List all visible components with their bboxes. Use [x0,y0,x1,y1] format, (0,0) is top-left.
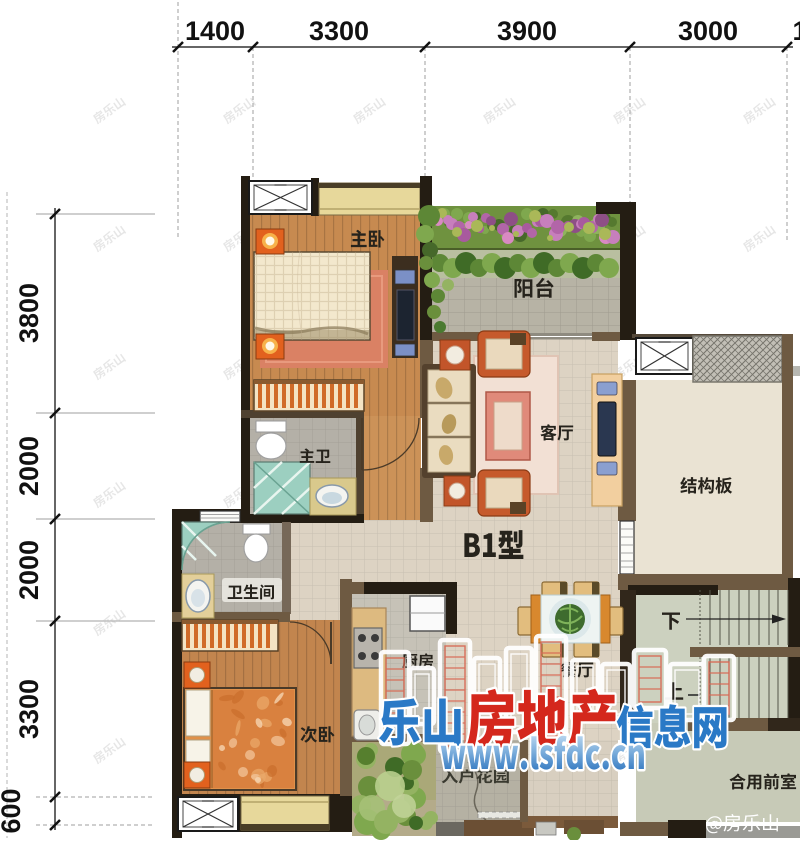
svg-text:3300: 3300 [14,679,44,739]
svg-text:3000: 3000 [678,16,738,46]
svg-text:3300: 3300 [309,16,369,46]
svg-text:1400: 1400 [185,16,245,46]
svg-text:1: 1 [792,16,800,46]
svg-text:3900: 3900 [497,16,557,46]
svg-text:600: 600 [0,788,26,833]
svg-text:2000: 2000 [14,436,44,496]
svg-text:3800: 3800 [14,283,44,343]
svg-text:2000: 2000 [14,540,44,600]
